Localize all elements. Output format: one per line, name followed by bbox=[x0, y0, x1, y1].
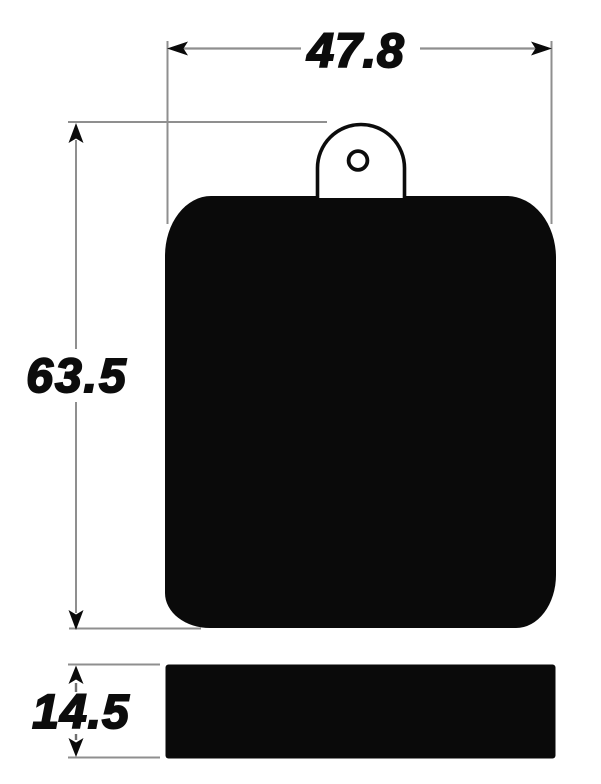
svg-text:63.5: 63.5 bbox=[26, 350, 127, 403]
svg-text:47.8: 47.8 bbox=[306, 25, 404, 78]
svg-text:14.5: 14.5 bbox=[32, 686, 130, 739]
